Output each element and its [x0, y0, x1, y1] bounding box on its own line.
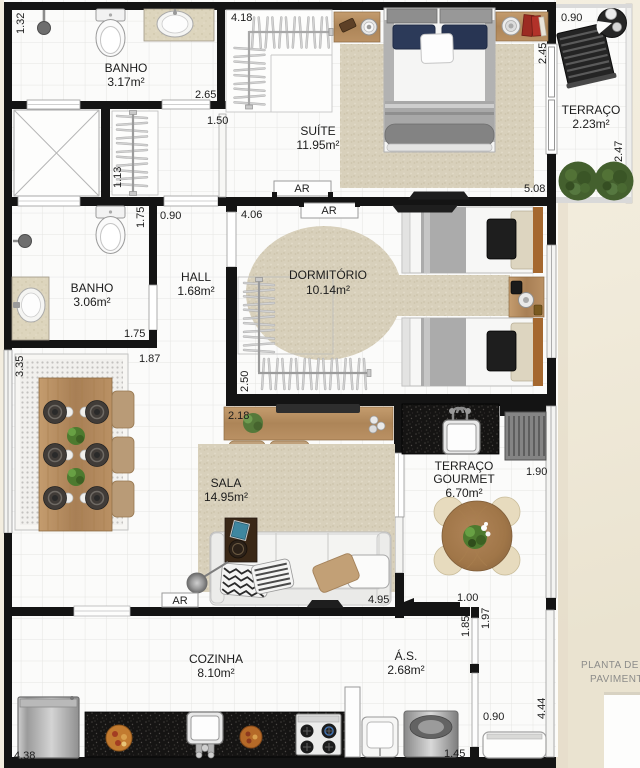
- svg-text:4.06: 4.06: [241, 209, 262, 221]
- svg-text:SUÍTE: SUÍTE: [300, 123, 335, 138]
- svg-text:2.50: 2.50: [239, 371, 251, 392]
- svg-text:3.06m²: 3.06m²: [73, 295, 110, 309]
- svg-text:2.45: 2.45: [537, 43, 549, 64]
- svg-text:0.90: 0.90: [561, 12, 582, 24]
- svg-text:1.68m²: 1.68m²: [177, 284, 214, 298]
- svg-text:6.70m²: 6.70m²: [445, 486, 482, 500]
- svg-text:4.95: 4.95: [368, 594, 389, 606]
- svg-text:HALL: HALL: [181, 270, 211, 284]
- svg-text:1.90: 1.90: [526, 466, 547, 478]
- svg-text:AR: AR: [294, 183, 309, 195]
- svg-text:11.95m²: 11.95m²: [296, 138, 339, 152]
- svg-text:1.50: 1.50: [207, 115, 228, 127]
- svg-text:1.87: 1.87: [139, 353, 160, 365]
- svg-text:AR: AR: [172, 595, 187, 607]
- svg-text:Á.S.: Á.S.: [395, 648, 418, 663]
- svg-text:1.45: 1.45: [444, 748, 465, 760]
- svg-text:4.44: 4.44: [536, 698, 548, 719]
- svg-text:4.18: 4.18: [231, 12, 252, 24]
- svg-text:1.75: 1.75: [135, 207, 147, 228]
- svg-text:BANHO: BANHO: [71, 281, 114, 295]
- svg-text:GOURMET: GOURMET: [433, 472, 495, 486]
- svg-text:PAVIMENTO C: PAVIMENTO C: [590, 674, 640, 685]
- svg-text:1.85: 1.85: [460, 616, 472, 637]
- svg-text:AR: AR: [321, 205, 336, 217]
- svg-text:2.47: 2.47: [613, 141, 625, 162]
- svg-text:1.97: 1.97: [480, 608, 492, 629]
- svg-text:DORMITÓRIO: DORMITÓRIO: [289, 267, 367, 282]
- svg-text:14.95m²: 14.95m²: [204, 490, 248, 504]
- svg-text:8.10m²: 8.10m²: [197, 666, 234, 680]
- svg-text:BANHO: BANHO: [105, 61, 148, 75]
- svg-text:3.17m²: 3.17m²: [107, 75, 144, 89]
- svg-text:SALA: SALA: [211, 476, 242, 490]
- svg-text:3.35: 3.35: [14, 356, 26, 377]
- svg-text:PLANTA DE SITUA: PLANTA DE SITUA: [581, 660, 640, 671]
- svg-text:2.18: 2.18: [228, 410, 249, 422]
- svg-text:4.38: 4.38: [14, 750, 35, 762]
- svg-text:2.68m²: 2.68m²: [387, 663, 424, 677]
- svg-text:TERRAÇO: TERRAÇO: [562, 103, 621, 117]
- svg-text:5.08: 5.08: [524, 183, 545, 195]
- svg-text:2.65: 2.65: [195, 89, 216, 101]
- svg-text:0.90: 0.90: [483, 711, 504, 723]
- svg-text:1.32: 1.32: [15, 13, 27, 34]
- svg-text:0.90: 0.90: [160, 210, 181, 222]
- svg-text:1.00: 1.00: [457, 592, 478, 604]
- svg-text:1.75: 1.75: [124, 328, 145, 340]
- svg-text:1.13: 1.13: [112, 167, 124, 188]
- svg-text:10.14m²: 10.14m²: [306, 283, 350, 297]
- svg-text:2.23m²: 2.23m²: [572, 117, 609, 131]
- svg-text:TERRAÇO: TERRAÇO: [435, 459, 494, 473]
- svg-text:COZINHA: COZINHA: [189, 652, 243, 666]
